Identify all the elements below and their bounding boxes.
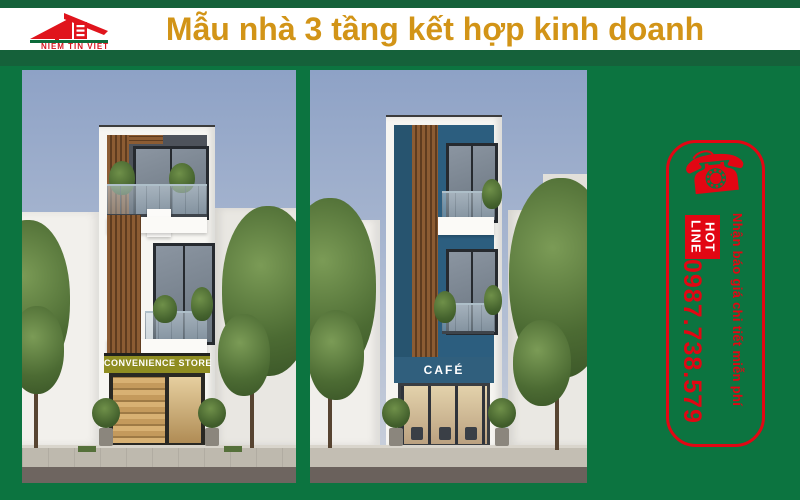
tree xyxy=(310,310,364,400)
hedge xyxy=(224,446,242,452)
cafe-glass xyxy=(401,386,487,444)
plant xyxy=(153,295,177,323)
wood-slat-column xyxy=(107,215,141,353)
plant xyxy=(488,398,516,428)
road xyxy=(22,467,296,483)
upper-floors xyxy=(394,125,494,357)
wood-slat-strip xyxy=(412,125,438,357)
store-door-glass xyxy=(169,377,201,443)
left-house-photo: CONVENIENCE STORE xyxy=(22,70,296,483)
hedge xyxy=(78,446,96,452)
header-bottom-stripe xyxy=(0,50,800,66)
plant xyxy=(191,287,213,321)
plant xyxy=(382,398,410,428)
road xyxy=(310,467,587,483)
cafe-table xyxy=(465,427,477,440)
plant xyxy=(482,179,502,209)
plant xyxy=(484,285,502,315)
house-logo-icon xyxy=(26,9,124,43)
pot-base xyxy=(205,428,219,446)
potted-plant xyxy=(382,398,410,446)
cafe-sign: CAFÉ xyxy=(394,357,494,383)
third-floor xyxy=(107,135,207,217)
hotline-phone-number: 0987.738.579 xyxy=(679,259,704,424)
pot-base xyxy=(495,428,509,446)
storefront xyxy=(398,383,490,447)
hotline-card: ☎ HOT LINE 0987.738.579 Nhận báo giá chi… xyxy=(666,140,765,447)
tree xyxy=(513,320,571,406)
storefront xyxy=(109,373,205,447)
hotline-badge: HOT LINE xyxy=(685,215,720,259)
potted-plant xyxy=(92,398,120,446)
hotline-badge-line2: LINE xyxy=(688,220,702,254)
hotline-badge-line1: HOT xyxy=(702,220,716,254)
brand-logo: NIEM TIN VIET xyxy=(26,9,124,51)
plant xyxy=(434,291,456,323)
teal-column xyxy=(394,125,412,357)
cafe-table xyxy=(439,427,451,440)
pot-base xyxy=(389,428,403,446)
brand-name: NIEM TIN VIET xyxy=(26,42,124,51)
cafe-table xyxy=(411,427,423,440)
floor-slab xyxy=(438,217,494,235)
potted-plant xyxy=(488,398,516,446)
pot-base xyxy=(99,428,113,446)
right-house-photo: CAFÉ xyxy=(310,70,587,483)
hotline-note: Nhận báo giá chi tiết miễn phí xyxy=(731,213,744,406)
potted-plant xyxy=(198,398,226,446)
tree xyxy=(218,314,270,396)
plant xyxy=(198,398,226,428)
banner: NIEM TIN VIET Mẫu nhà 3 tầng kết hợp kin… xyxy=(0,0,800,500)
page-title: Mẫu nhà 3 tầng kết hợp kinh doanh xyxy=(128,8,742,50)
store-sign: CONVENIENCE STORE xyxy=(104,353,210,373)
store-window-shelves xyxy=(113,377,165,443)
phone-icon: ☎ xyxy=(667,144,765,205)
header-top-stripe xyxy=(0,0,800,8)
plant xyxy=(92,398,120,428)
